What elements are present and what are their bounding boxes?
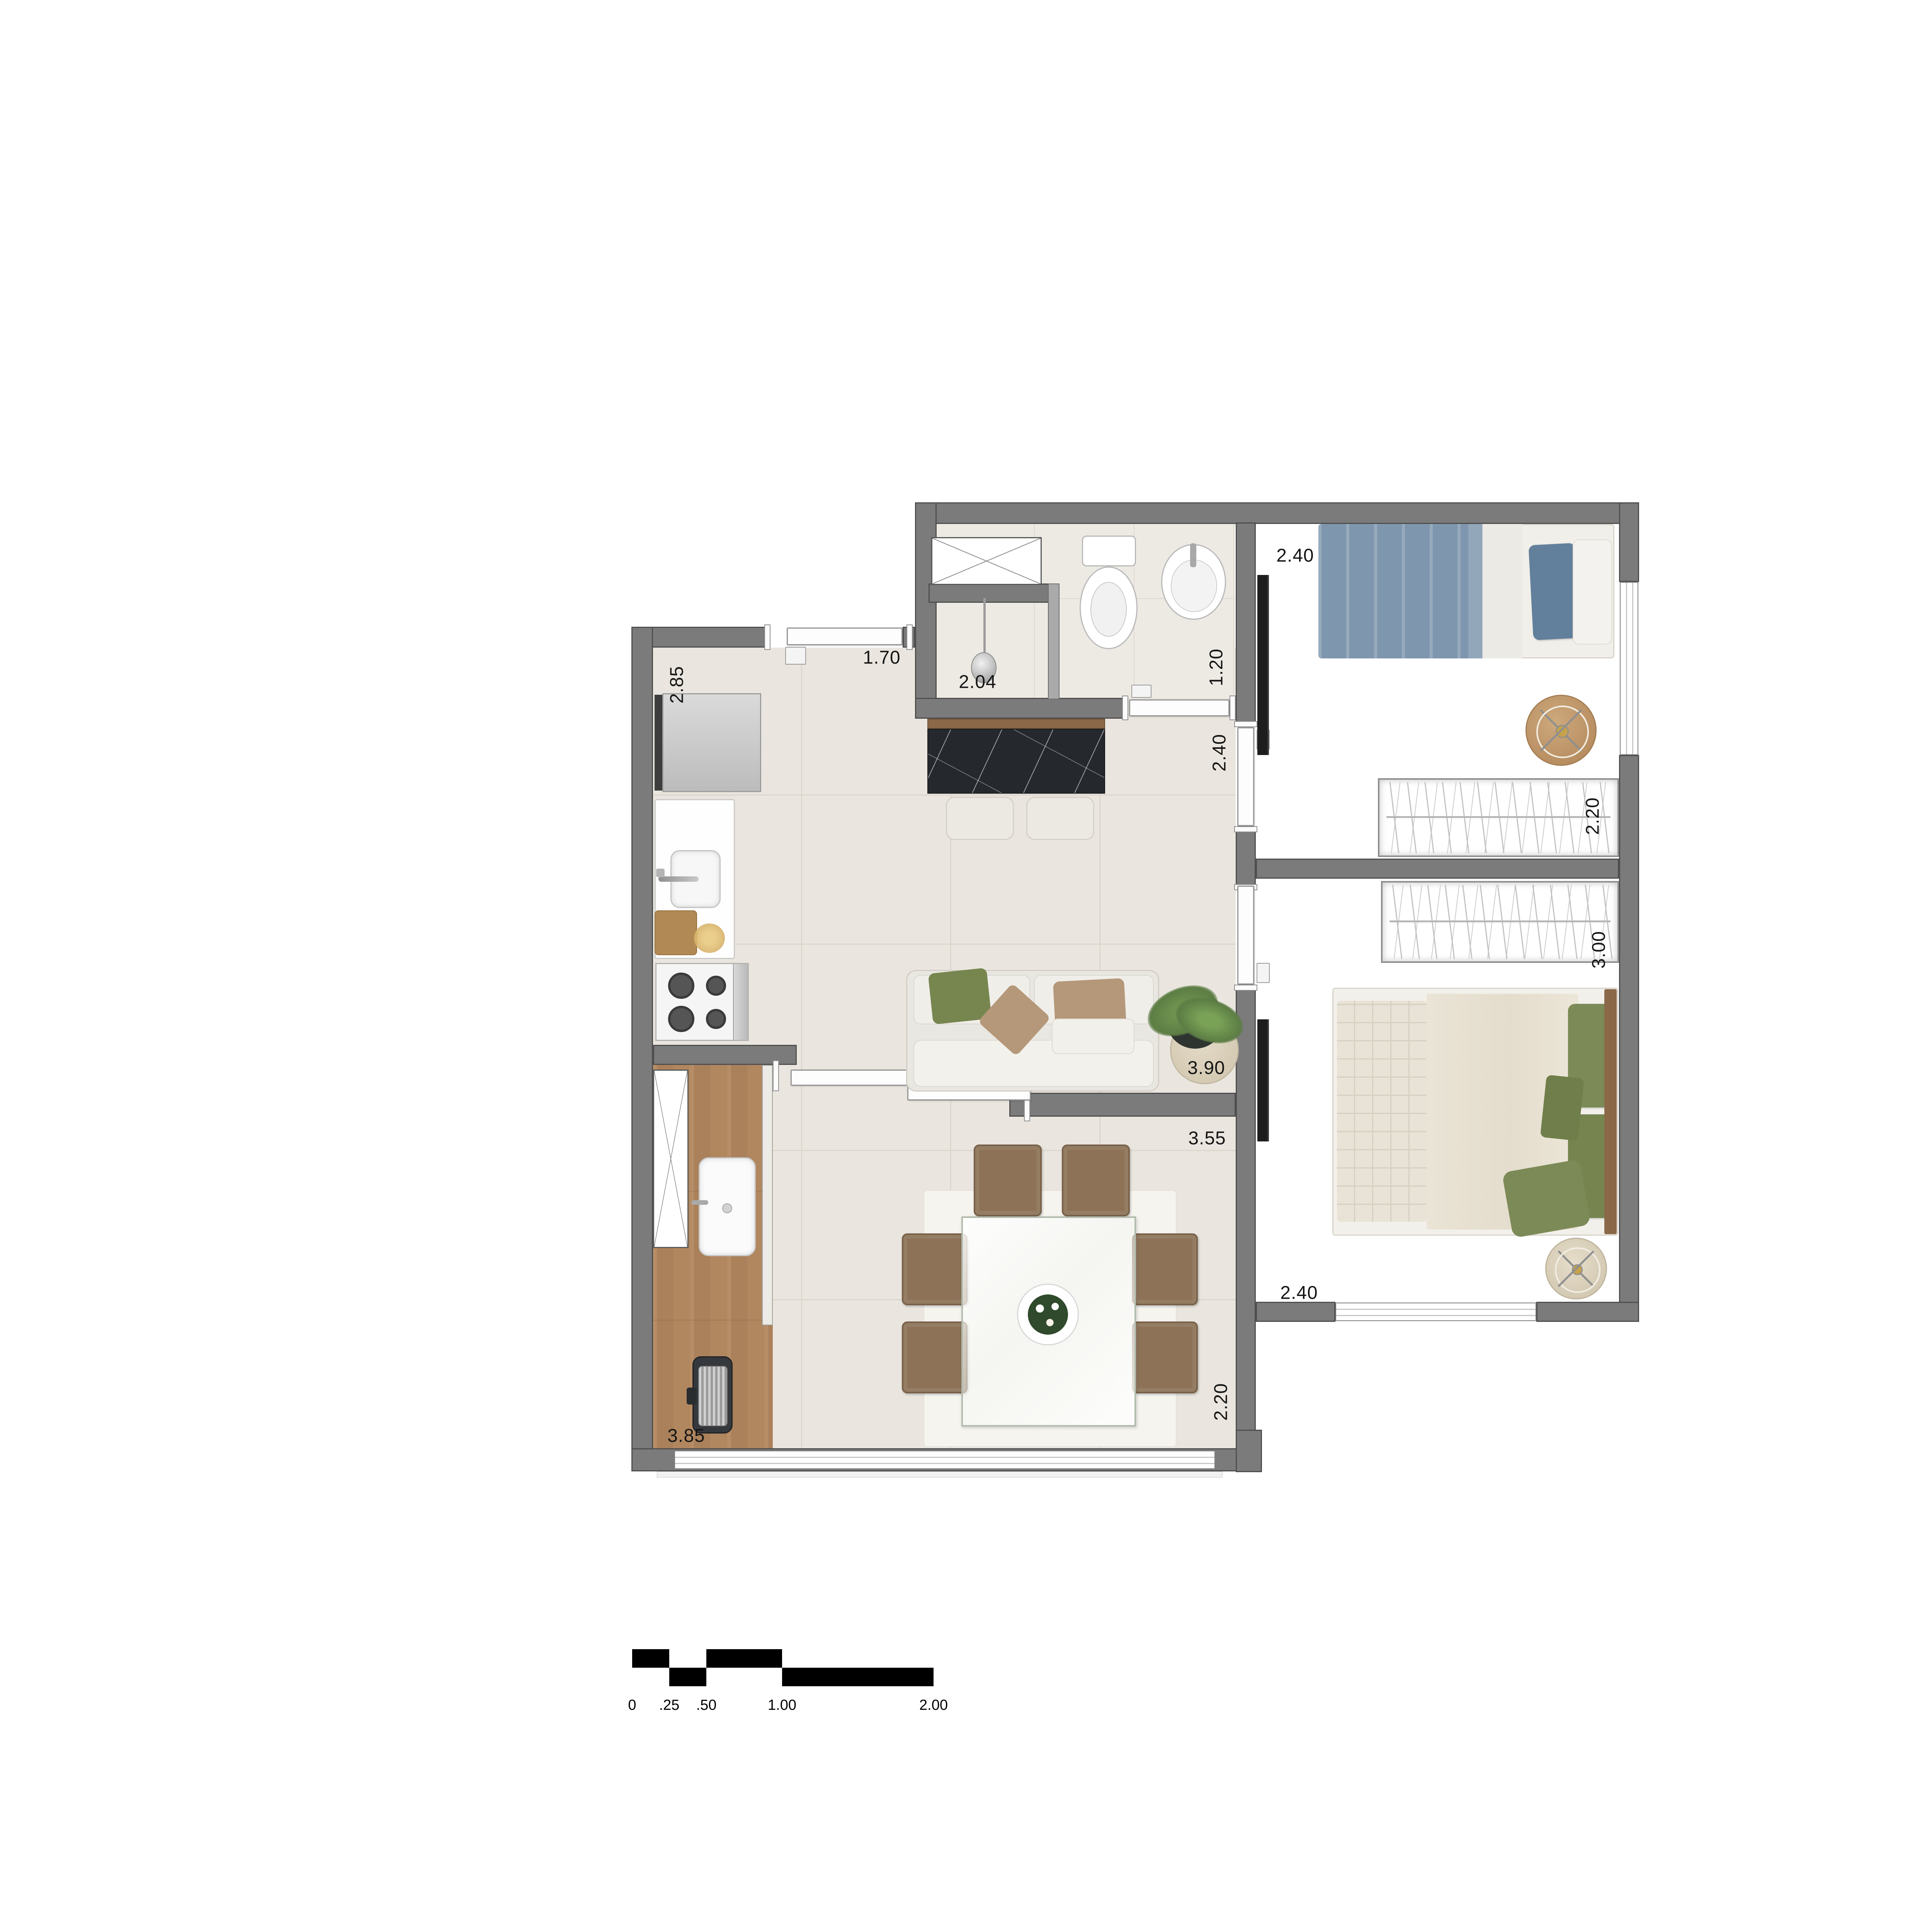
grill-grate	[698, 1366, 728, 1426]
dim-service-length: 3.85	[667, 1425, 705, 1447]
dim-bath-shower: 2.04	[959, 672, 996, 693]
wall-spine-lower	[1236, 988, 1256, 1448]
scale-tick-200: 2.00	[919, 1697, 948, 1714]
window-bedroom1	[1620, 582, 1638, 755]
toilet-seat	[1090, 582, 1127, 637]
scale-bar-block	[632, 1649, 669, 1668]
scale-bar-block	[782, 1668, 934, 1686]
burner	[668, 973, 694, 999]
wall-bedroom2-bottom-left	[1256, 1302, 1335, 1322]
wall-divider-living-dining	[1009, 1093, 1236, 1117]
scale-bar-block	[669, 1668, 706, 1686]
entry-door-jamb	[906, 624, 913, 650]
dining-chair	[902, 1321, 968, 1393]
wardrobe-bedroom2	[1381, 881, 1619, 963]
dim-dining-width: 3.55	[1188, 1128, 1226, 1149]
bed-headboard	[1604, 989, 1617, 1234]
stove	[655, 963, 749, 1041]
bedroom2-door-hinge	[1257, 963, 1270, 983]
dim-living-width: 3.90	[1187, 1058, 1225, 1079]
pillow-blue	[1529, 543, 1580, 640]
wall-se-corner	[1236, 1430, 1262, 1472]
wall-bedrooms-divider	[1256, 859, 1619, 879]
tv-bedroom1	[1257, 575, 1269, 755]
bathroom-door-jamb	[1230, 696, 1236, 720]
kitchen-faucet-handle	[656, 869, 665, 877]
side-table-travertine	[1545, 1238, 1607, 1299]
scale-tick-025: .25	[659, 1697, 680, 1714]
wall-bathroom-bottom	[915, 698, 1128, 719]
dim-kitchen-width: 2.85	[667, 666, 688, 703]
bed-single-sheet-fold	[1468, 524, 1522, 658]
window-sill-dining	[657, 1471, 1223, 1478]
burner	[706, 976, 726, 996]
dining-chair	[1132, 1233, 1198, 1305]
kitchen-faucet	[658, 876, 699, 882]
vase-flowers	[1028, 1294, 1068, 1335]
bed-single-duvet	[1318, 524, 1481, 658]
fridge-back-panel	[655, 695, 662, 791]
bedroom1-door-jamb	[1234, 826, 1257, 832]
scale-tick-0: 0	[628, 1697, 636, 1714]
wall-bedroom2-bottom-right	[1536, 1302, 1639, 1322]
bedroom2-door	[1237, 886, 1254, 985]
dim-entry-width: 1.70	[863, 647, 900, 668]
dim-dining-depth: 2.20	[1211, 1383, 1232, 1420]
wall-spine-mid	[1236, 829, 1256, 886]
dim-bath-width: 1.20	[1206, 648, 1227, 686]
entry-door-jamb	[764, 624, 770, 650]
dining-chair	[1062, 1145, 1130, 1216]
stove-controls	[733, 964, 748, 1040]
dim-bed2-length: 3.00	[1588, 931, 1610, 968]
entry-door-hinge	[785, 647, 806, 665]
pillow-white	[1573, 539, 1612, 645]
fridge	[662, 693, 761, 792]
wall-top	[915, 502, 1639, 524]
wall-bathroom-left	[915, 502, 937, 719]
scale-tick-100: 1.00	[768, 1697, 796, 1714]
scale-tick-050: .50	[696, 1697, 717, 1714]
dim-bed2-width: 2.40	[1280, 1282, 1318, 1304]
bathroom-door-jamb	[1122, 696, 1128, 720]
grill-knob	[687, 1388, 697, 1405]
cutting-board	[655, 910, 697, 955]
bedroom1-door-jamb	[1234, 721, 1257, 727]
bathroom-door-hinge	[1131, 685, 1151, 698]
vent-shaft-bathroom	[931, 537, 1042, 585]
sliding-door-jamb	[773, 1060, 779, 1091]
window-dining	[674, 1451, 1215, 1469]
pillow-green-small	[1540, 1075, 1584, 1141]
wall-right-lower	[1619, 755, 1639, 1322]
portable-grill	[692, 1356, 733, 1434]
dining-chair	[902, 1233, 968, 1305]
bath-sink-basin	[1171, 560, 1217, 612]
floor-plan: 2.85 1.70 2.04 1.20 2.40 2.40 2.20 3.00 …	[0, 0, 1932, 1932]
dining-chair	[1132, 1321, 1198, 1393]
bathroom-door	[1129, 699, 1230, 716]
throw-green	[1502, 1159, 1591, 1238]
wall-spine-upper	[1236, 522, 1256, 726]
bar-counter-marble	[927, 729, 1105, 794]
window-bedroom2	[1335, 1303, 1536, 1321]
pillow-white	[1052, 1019, 1134, 1054]
laundry-tub-faucet	[691, 1200, 708, 1205]
service-glass-partition	[762, 1065, 773, 1325]
dining-chair	[974, 1145, 1042, 1216]
burner	[668, 1006, 694, 1032]
bar-stool	[1026, 797, 1094, 840]
bed-double-quilt	[1337, 1001, 1427, 1222]
dim-hall-width: 2.40	[1209, 734, 1230, 771]
wall-right-upper	[1619, 502, 1639, 582]
dim-bed1-width: 2.40	[1276, 545, 1314, 566]
wall-left	[631, 627, 653, 1471]
dim-wardrobe1: 2.20	[1582, 797, 1604, 835]
scale-bar-block	[706, 1649, 782, 1668]
bedroom1-door	[1237, 727, 1254, 826]
vent-shaft-service	[653, 1070, 689, 1248]
bedroom2-door-jamb	[1234, 985, 1257, 991]
burner	[706, 1009, 726, 1029]
toilet-tank	[1082, 536, 1136, 566]
shower-arm	[983, 598, 986, 656]
side-stool-wood	[1526, 695, 1597, 766]
bath-faucet	[1190, 543, 1196, 567]
sliding-door-panel	[791, 1070, 914, 1086]
wall-shower-partition	[1048, 583, 1060, 699]
entry-door	[787, 628, 903, 645]
food-garnish	[694, 923, 725, 953]
tv-bedroom2	[1257, 1019, 1269, 1141]
laundry-tub-drain	[722, 1203, 732, 1213]
bar-counter-wood-edge	[927, 719, 1105, 729]
bar-stool	[946, 797, 1014, 840]
laundry-tub	[699, 1157, 756, 1256]
wall-under-shaft	[929, 583, 1049, 603]
